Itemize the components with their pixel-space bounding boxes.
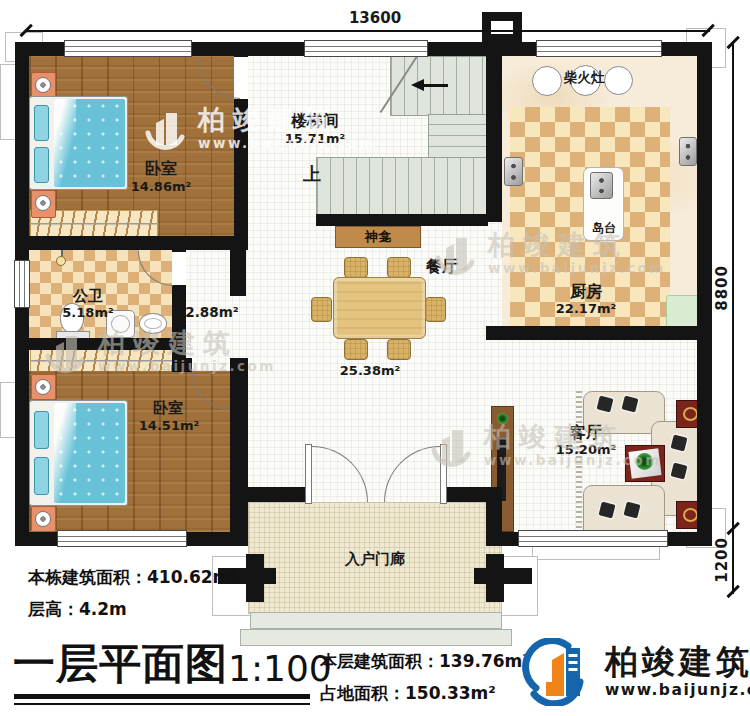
gas-stove-icon xyxy=(504,157,523,186)
kitchen-area: 22.17m² xyxy=(552,302,620,316)
stair-hall-area: 15.71m² xyxy=(277,132,353,146)
rug-fringe xyxy=(576,391,582,543)
dining-name: 餐厅 xyxy=(412,258,472,276)
scale-label: 1:100 xyxy=(228,648,332,689)
bed xyxy=(29,96,128,190)
living-area: 15.20m² xyxy=(550,443,622,457)
title-underline-thick xyxy=(14,694,310,699)
porch-step xyxy=(240,629,512,646)
wall-porch-left xyxy=(230,487,308,502)
floor-plan-page: 神龛 卧室 14.86m² 楼梯间 15.71m² 上 柴火灶 岛台 厨房 22… xyxy=(0,0,750,716)
floor-area-value: 139.76m² xyxy=(439,651,530,671)
footprint-line: 占地面积：150.33m² xyxy=(320,682,496,705)
floor-area-line: 本层建筑面积：139.76m² xyxy=(320,650,530,673)
stairs-up-label: 上 xyxy=(300,164,324,184)
stairs-direction-line xyxy=(424,84,448,87)
lamp-icon xyxy=(35,379,51,395)
nightstand xyxy=(31,374,56,400)
building-area-value: 410.62m² xyxy=(147,567,238,587)
wall-kitchen-left xyxy=(486,56,502,222)
island-sink-icon xyxy=(590,172,613,199)
page-title: 一层平面图 xyxy=(13,636,228,692)
dimension-porch-depth: 1200 xyxy=(713,537,731,583)
window xyxy=(14,260,30,308)
dining-chair xyxy=(344,339,368,360)
floor-area-label: 本层建筑面积： xyxy=(320,651,439,671)
wood-stove-label: 柴火灶 xyxy=(556,70,612,85)
hallway-area: 2.88m² xyxy=(184,305,240,320)
wall-right xyxy=(697,42,712,546)
kitchen-mat xyxy=(666,295,699,328)
kitchen-name: 厨房 xyxy=(554,283,618,301)
wall-bedroom-bathroom xyxy=(15,236,246,250)
pillow xyxy=(34,105,49,141)
dining-chair xyxy=(344,257,368,278)
window xyxy=(518,530,668,547)
window xyxy=(57,530,187,547)
window-sill xyxy=(532,546,660,560)
dining-area: 25.38m² xyxy=(330,364,410,378)
porch-step xyxy=(250,612,502,629)
lamp-icon xyxy=(35,195,51,211)
wall-stairs-bottom xyxy=(316,214,488,226)
bed xyxy=(29,400,128,506)
bathroom-name: 公卫 xyxy=(64,288,112,305)
lamp-icon xyxy=(35,77,51,93)
quilt xyxy=(54,403,125,503)
wall-kitchen-living xyxy=(486,326,712,340)
stair-hall-name: 楼梯间 xyxy=(277,112,353,130)
sink-icon xyxy=(139,313,167,334)
dimension-line-top xyxy=(26,30,710,32)
bedroom-top-name: 卧室 xyxy=(121,160,201,178)
floor-height-value: 4.2m xyxy=(79,599,127,619)
stairs-direction-arrow-icon xyxy=(411,79,424,91)
dining-chair xyxy=(387,257,411,278)
dining-chair xyxy=(425,297,446,322)
wall-porch-stub xyxy=(486,487,502,546)
porch-name: 入户门廊 xyxy=(330,551,420,568)
title-underline-thin xyxy=(14,703,310,705)
chimney xyxy=(482,12,522,43)
dining-table xyxy=(333,277,426,339)
quilt xyxy=(54,99,125,187)
porch-column xyxy=(486,554,504,602)
nightstand xyxy=(31,190,56,218)
floor-height-label: 层高： xyxy=(28,599,79,619)
wall-bathroom-bottom xyxy=(15,338,173,350)
pillow xyxy=(34,411,49,449)
exterior-platform xyxy=(0,382,16,438)
footprint-value: 150.33m² xyxy=(405,683,496,703)
wall-bedroom-dining xyxy=(230,358,248,532)
stairs-landing xyxy=(428,114,488,159)
wall-hall-dining xyxy=(230,250,246,296)
dimension-width: 13600 xyxy=(330,10,420,27)
door-opening xyxy=(172,252,186,285)
company-site: www.baijunjz.com xyxy=(605,683,750,699)
dimension-line-right xyxy=(732,44,734,594)
kitchen-sink-icon xyxy=(679,137,697,166)
nightstand xyxy=(31,506,56,532)
living-name: 客厅 xyxy=(556,424,616,442)
dining-chair xyxy=(311,297,332,322)
entry-door-panel xyxy=(440,444,447,504)
building-area-line: 本栋建筑面积：410.62m² xyxy=(28,566,238,589)
bedroom-bottom-wardrobe xyxy=(30,349,173,373)
dimension-height-main: 8800 xyxy=(713,265,731,311)
exterior-platform xyxy=(0,64,16,140)
plant-icon xyxy=(636,453,653,470)
bedroom-bottom-area: 14.51m² xyxy=(132,419,206,433)
porch-column xyxy=(246,554,264,602)
island-label: 岛台 xyxy=(584,222,624,235)
company-logo-icon xyxy=(522,638,596,706)
pillow xyxy=(34,457,49,495)
floor-height-line: 层高：4.2m xyxy=(28,598,127,621)
stairs-lower-flight xyxy=(316,157,488,216)
company-logo: 柏竣建筑 www.baijunjz.com xyxy=(522,638,750,706)
window xyxy=(304,40,428,57)
building-area-label: 本栋建筑面积： xyxy=(28,567,147,587)
plant-icon xyxy=(497,413,508,424)
window xyxy=(64,40,192,57)
shrine-label: 神龛 xyxy=(365,228,391,246)
bedroom-top-area: 14.86m² xyxy=(121,180,201,194)
pillow xyxy=(34,147,49,183)
pendant-light-icon xyxy=(56,256,66,266)
shrine: 神龛 xyxy=(335,226,421,248)
entry-door-panel xyxy=(305,444,312,504)
bedroom-bottom-name: 卧室 xyxy=(136,400,200,417)
window xyxy=(536,40,662,57)
wall-bedroom-bottom-top xyxy=(172,358,192,372)
lamp-icon xyxy=(35,511,51,527)
dining-chair xyxy=(387,339,411,360)
footprint-label: 占地面积： xyxy=(320,683,405,703)
company-name: 柏竣建筑 xyxy=(605,645,750,678)
bathroom-area: 5.18m² xyxy=(60,306,116,320)
